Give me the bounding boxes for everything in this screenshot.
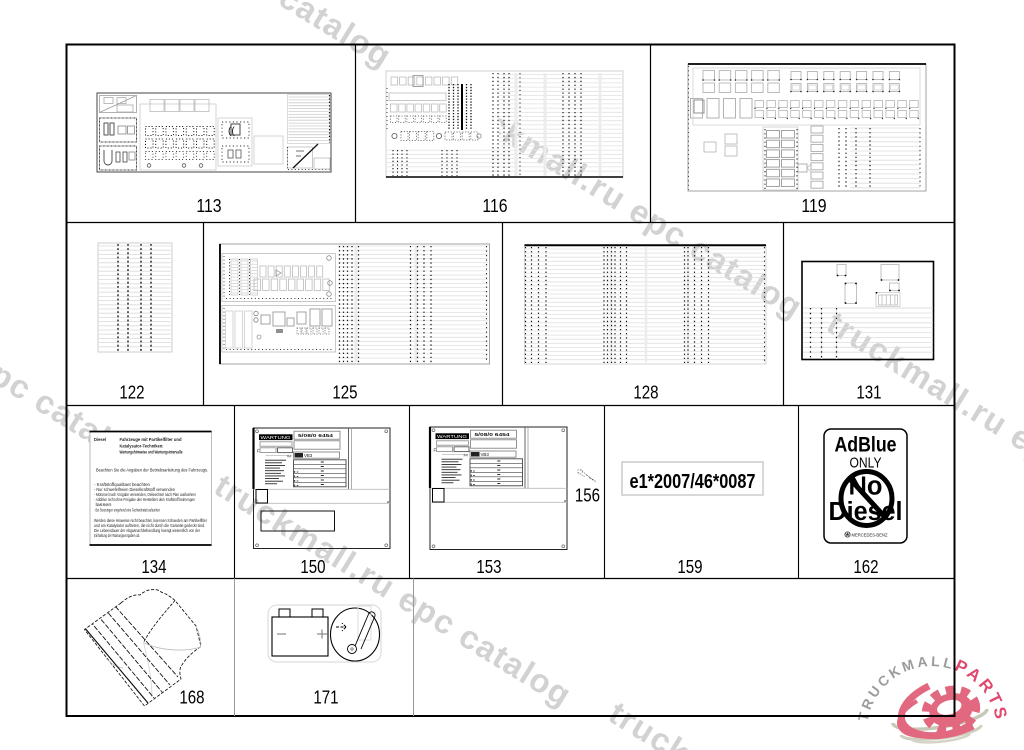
svg-text:VB3: VB3 [304,453,313,458]
svg-text:5/08/0 6454: 5/08/0 6454 [475,432,510,438]
svg-text:e1*2007/46*0087: e1*2007/46*0087 [630,470,756,493]
svg-text:Diesel: Diesel [829,498,903,526]
svg-text:134: 134 [141,557,166,577]
svg-text:156: 156 [575,486,600,506]
svg-text:128: 128 [633,383,658,403]
svg-text:159: 159 [677,557,702,577]
svg-text:Fahrzeuge mit Partikelfilter u: Fahrzeuge mit Partikelfilter und [120,437,182,442]
svg-text:113: 113 [196,196,221,216]
svg-text:Diesel: Diesel [94,437,106,442]
svg-text:MERCEDES-BENZ: MERCEDES-BENZ [852,533,888,538]
svg-text:WARTUNG: WARTUNG [437,434,468,439]
svg-text:Wartungshinweise und Wartungsi: Wartungshinweise und Wartungsintervalle [120,450,183,455]
svg-text:Beachten Sie die Angaben der B: Beachten Sie die Angaben der Betriebsanl… [96,468,208,473]
svg-text:##: ## [287,454,292,459]
svg-text:Katalysator-Techniken:: Katalysator-Techniken: [120,443,164,448]
svg-text:171: 171 [313,688,338,708]
svg-text:5/08/0 6454: 5/08/0 6454 [298,433,333,439]
svg-text:F: F [434,448,437,453]
svg-text:168: 168 [179,688,204,708]
svg-text:F: F [257,449,260,454]
svg-text:116: 116 [482,196,507,216]
svg-text:No: No [849,473,883,501]
svg-text:Einhaltung der Wartungsvorgabe: Einhaltung der Wartungsvorgaben ab. [94,533,140,538]
svg-text:lassen: lassen [96,502,113,507]
svg-text:##: ## [464,453,469,458]
svg-text:153: 153 [476,557,501,577]
svg-text:125: 125 [332,383,357,403]
svg-text:150: 150 [300,557,325,577]
svg-text:131: 131 [856,383,881,403]
svg-text:122: 122 [119,383,144,403]
svg-text:AdBlue: AdBlue [835,434,897,457]
svg-text:WARTUNG: WARTUNG [261,435,292,440]
svg-text:VB3: VB3 [481,452,490,457]
svg-text:- Bei Stoerungen umgehend eine: - Bei Stoerungen umgehend eine Fachwerks… [94,508,160,513]
svg-text:119: 119 [801,196,826,216]
svg-text:ONLY: ONLY [850,455,882,472]
svg-text:truckmall.ru epc catalog: truckmall.ru epc catalog [28,0,398,75]
svg-text:162: 162 [853,557,878,577]
